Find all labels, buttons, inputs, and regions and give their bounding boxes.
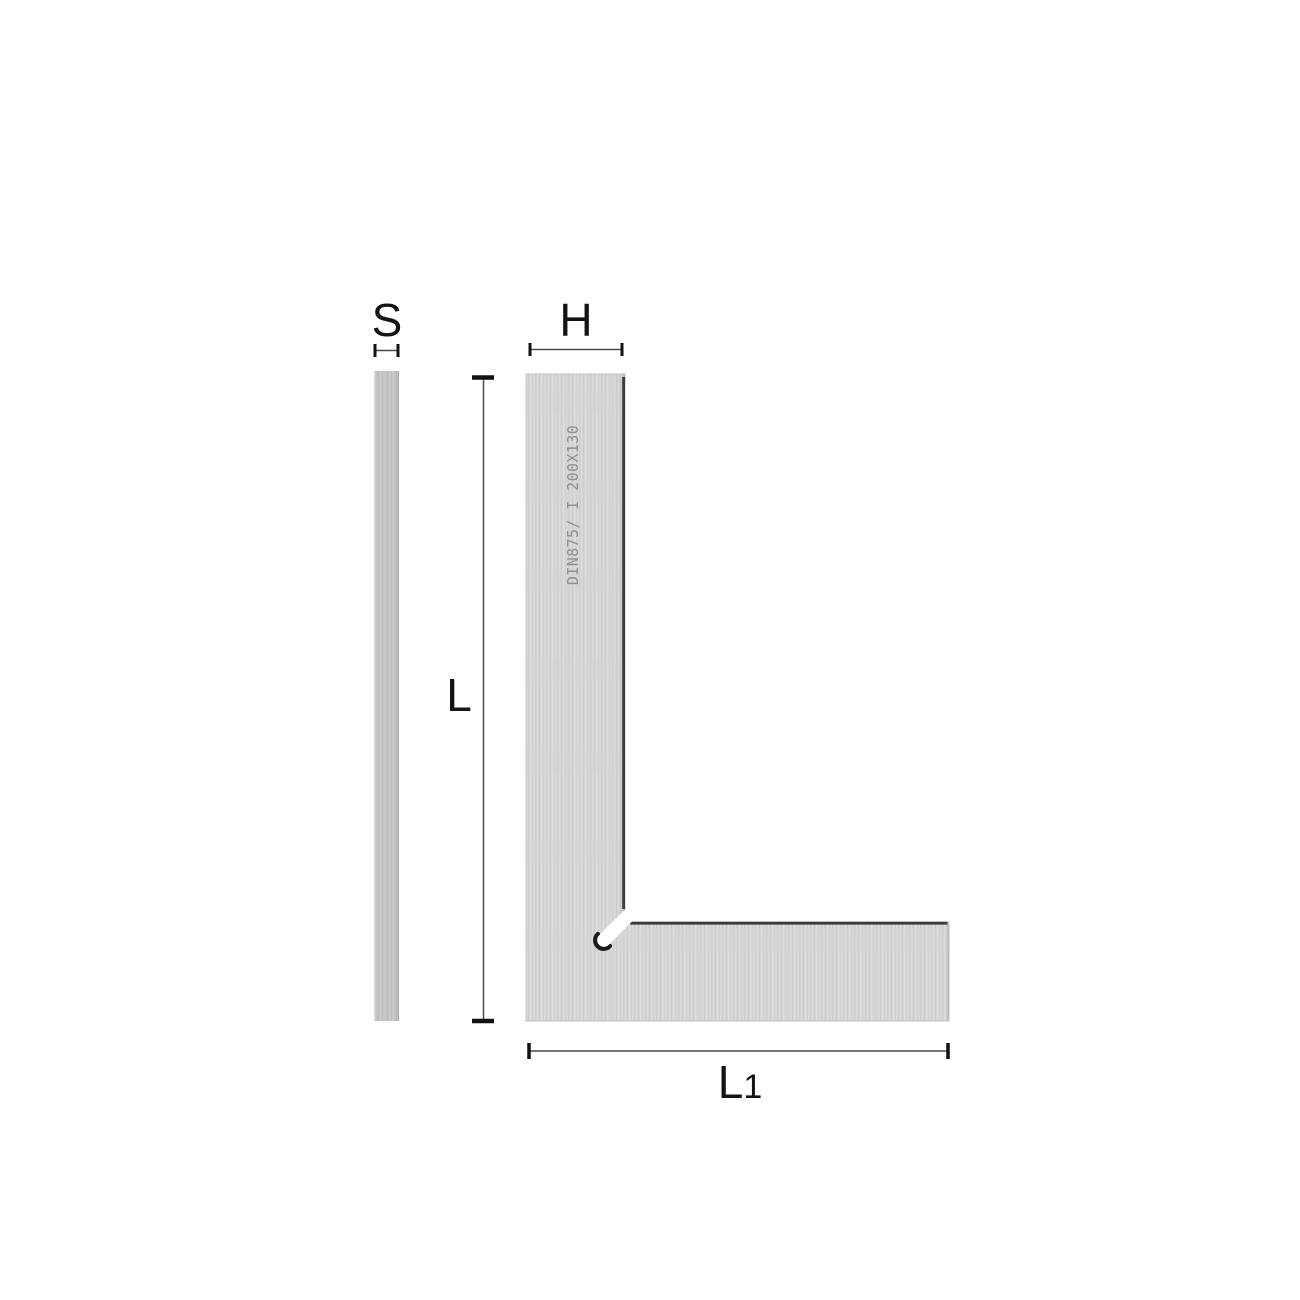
- dim-l-label: L: [446, 669, 472, 721]
- side-view-bar: [374, 371, 399, 1021]
- diagram-canvas: DIN875/ I 200X130 S H L L1: [0, 0, 1300, 1300]
- dim-s-label: S: [372, 294, 403, 346]
- dim-l1-label-main: L: [718, 1056, 744, 1108]
- background: [0, 0, 1300, 1300]
- dim-h-label: H: [559, 294, 592, 346]
- dim-l1-label-subscript: 1: [743, 1068, 762, 1106]
- side-view: [374, 371, 399, 1021]
- square-technical-drawing: DIN875/ I 200X130 S H L L1: [0, 0, 1300, 1300]
- engraving-text: DIN875/ I 200X130: [564, 425, 582, 585]
